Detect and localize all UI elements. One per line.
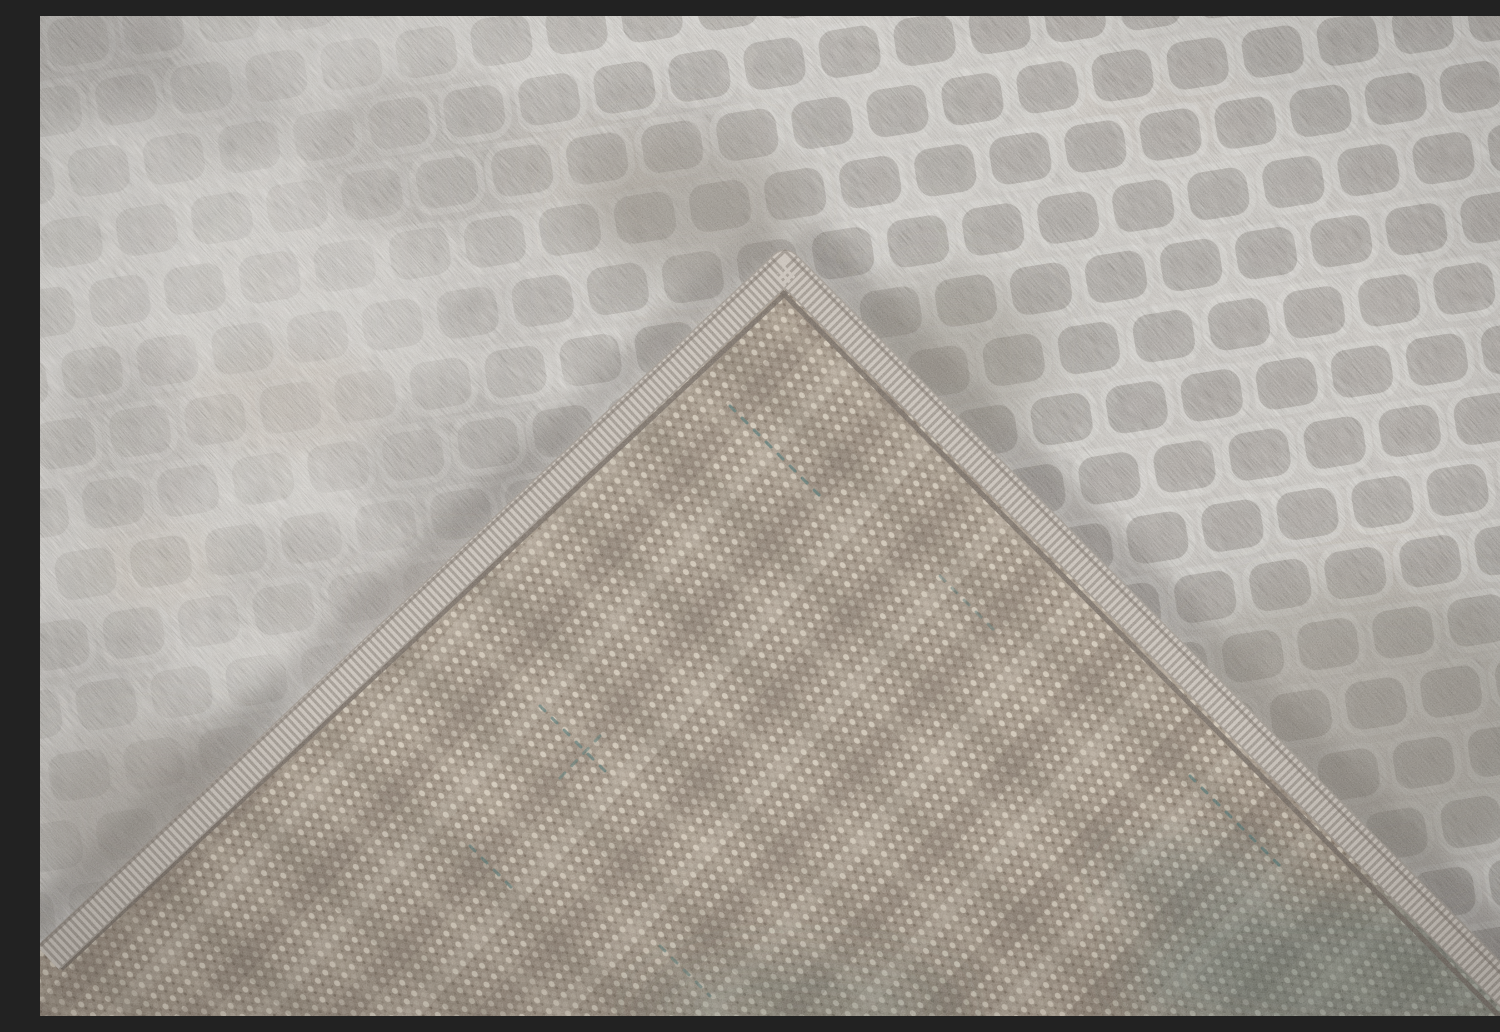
photo-vignette: [40, 16, 1500, 1016]
rug-photo-canvas: Close-up of a grey and beige distressed-…: [40, 16, 1500, 1016]
rug-photo: Close-up of a grey and beige distressed-…: [40, 16, 1500, 1016]
